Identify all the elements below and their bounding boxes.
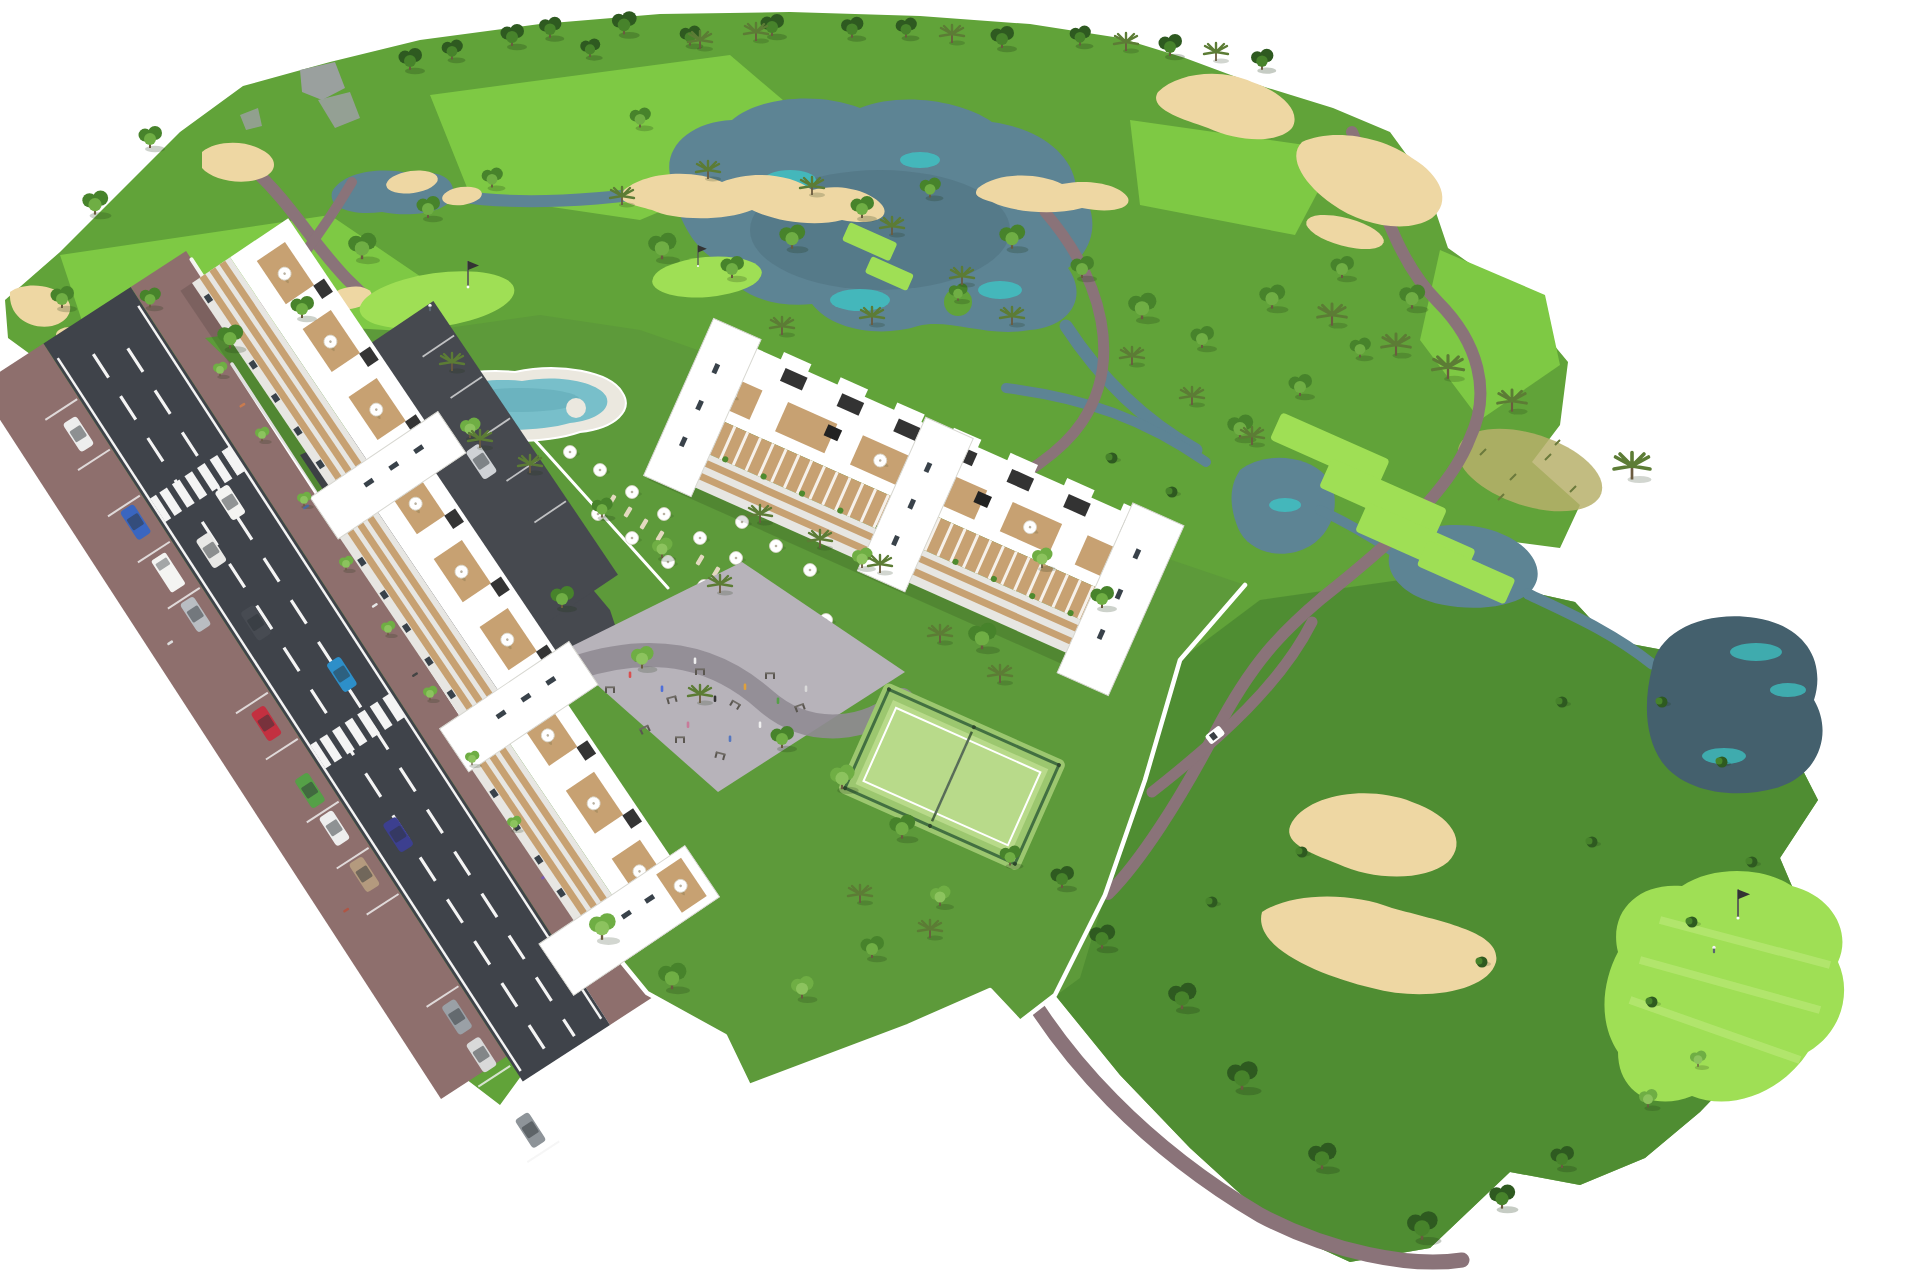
tree (139, 126, 166, 152)
teal-shallow (1730, 643, 1782, 661)
car (515, 1112, 547, 1149)
teal-shallow (1770, 683, 1806, 697)
teal-shallow (900, 152, 940, 168)
person (759, 722, 762, 729)
person (629, 672, 632, 679)
masterplan-render (0, 0, 1920, 1280)
tree (82, 190, 111, 219)
person (714, 696, 717, 703)
aerial-render-canvas (0, 0, 1920, 1280)
palm-tree (1204, 43, 1229, 63)
person (805, 686, 808, 693)
person (694, 658, 697, 665)
person (777, 698, 780, 705)
pool-island-deck (566, 398, 586, 418)
palm-tree (1614, 453, 1652, 484)
teal-shallow (978, 281, 1022, 299)
tree (1251, 49, 1276, 74)
person (661, 686, 664, 693)
person (687, 722, 690, 729)
person (744, 684, 747, 691)
southeast-pond (1647, 616, 1823, 793)
person (729, 736, 732, 743)
tree (1489, 1184, 1518, 1213)
teal-shallow (1269, 498, 1301, 512)
